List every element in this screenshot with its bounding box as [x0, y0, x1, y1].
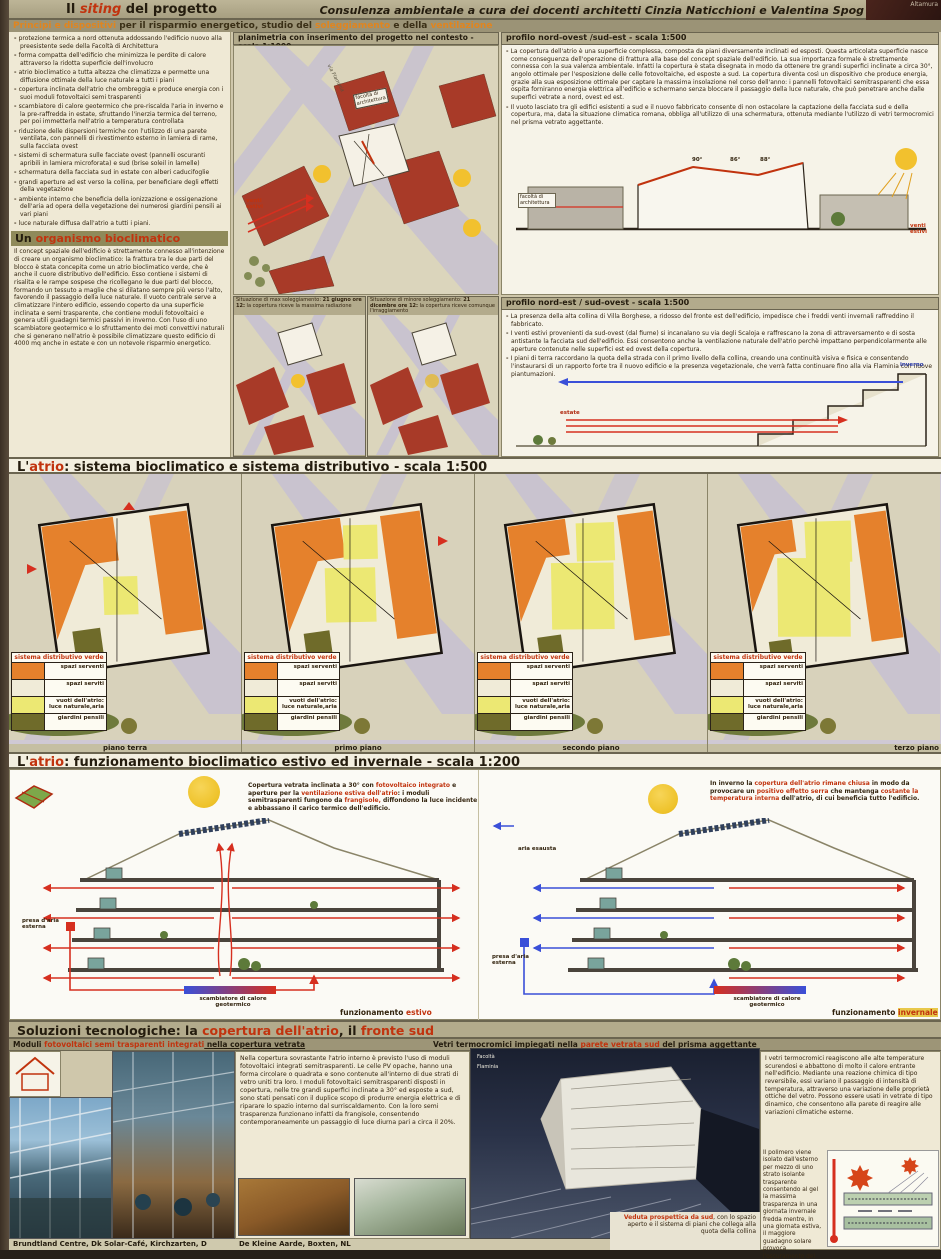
profilo-nw-header: profilo nord-ovest /sud-est - scala 1:50… — [501, 32, 939, 45]
legend-swatch — [12, 697, 45, 713]
legend-swatch — [12, 714, 45, 730]
house-icon-box — [9, 1051, 61, 1097]
veduta-accent: Veduta prospettica da sud — [624, 1214, 713, 1221]
sole-min-panel: Situazione di minore soleggiamento: 21 d… — [367, 296, 499, 457]
plan-legend: sistema distributivo verde spazi servent… — [11, 652, 107, 731]
legend-label: giardini pensili — [278, 714, 339, 730]
hdr-post: : funzionamento bioclimatico estivo ed i… — [64, 755, 520, 770]
inverno-label: inverno — [900, 362, 924, 368]
legend-row: vuoti dell'atrio: luce naturale,aria — [711, 697, 805, 714]
house-icon — [10, 1052, 60, 1096]
legend-row: spazi serventi — [245, 663, 339, 680]
legend-swatch — [245, 697, 278, 713]
bullet-item: La presenza della alta collina di Villa … — [511, 313, 934, 328]
sezione-estiva-drawing — [14, 818, 472, 1004]
bullet-item: luce naturale diffusa dall'atrio a tutti… — [20, 220, 225, 228]
principi-bullet-list: protezione termica a nord ottenuta addos… — [14, 35, 225, 228]
legend-label: spazi serventi — [511, 663, 572, 679]
principi-accent-1: Principi e dispositivi — [13, 21, 116, 31]
termocromico-diagram — [827, 1150, 939, 1247]
bullet-item: I venti estivi provenienti da sud-ovest … — [511, 330, 934, 353]
legend-label: spazi serventi — [45, 663, 106, 679]
scambiatore-label: scambiatore di calore geotermico — [188, 996, 278, 1009]
sole-max-caption: Situazione di max soleggiamento: 21 giug… — [234, 297, 365, 315]
legend-label: vuoti dell'atrio: luce naturale,aria — [511, 697, 572, 713]
legend-swatch — [245, 680, 278, 696]
photo-structure-graphic — [113, 1052, 234, 1238]
profilo-ne-header: profilo nord-est / sud-ovest - scala 1:5… — [501, 297, 939, 310]
legend-row: spazi serventi — [711, 663, 805, 680]
venti-estivi-label: venti estivi — [910, 223, 936, 236]
legend-title: sistema distributivo verde — [711, 653, 805, 663]
bullet-item: sistemi di schermatura sulle facciate ov… — [20, 152, 225, 167]
inverno-text: In inverno la copertura dell'atrio riman… — [710, 780, 938, 803]
photo-kleine-aarde-2 — [354, 1178, 466, 1236]
moduli-body: Nella copertura sovrastante l'atrio inte… — [236, 1052, 469, 1129]
principi-band: Principi e dispositivi per il risparmio … — [9, 20, 941, 32]
angle-86: 86° — [730, 157, 740, 163]
moduli-block: Nella copertura sovrastante l'atrio inte… — [235, 1051, 470, 1239]
organismo-title: Un organismo bioclimatico — [11, 231, 228, 247]
plan-panel-primo: sistema distributivo verde spazi servent… — [242, 474, 475, 752]
poster-title: Il siting del progetto — [66, 2, 217, 17]
legend-row: spazi serviti — [478, 680, 572, 697]
legend-swatch — [711, 697, 744, 713]
legend-swatch — [245, 663, 278, 679]
principi-accent-2: soleggiamento — [315, 21, 390, 31]
legend-row: giardini pensili — [478, 714, 572, 730]
legend-label: spazi serviti — [744, 680, 805, 696]
vetri-body-2: Il polimero viene isolato dall'esterno p… — [763, 1150, 825, 1259]
angle-88: 88° — [760, 157, 770, 163]
sole-min-caption: Situazione di minore soleggiamento: 21 d… — [368, 297, 498, 315]
sezioni-panel: Copertura vetrata inclinata a 30° con fo… — [9, 769, 941, 1020]
legend-label: giardini pensili — [45, 714, 106, 730]
legend-row: spazi serventi — [12, 663, 106, 680]
photo-caption-brundtland: Brundtland Centre, Dk Solar-Café, Kirchz… — [9, 1239, 235, 1250]
estate-text: Copertura vetrata inclinata a 30° con fo… — [248, 782, 478, 813]
legend-label: spazi serventi — [278, 663, 339, 679]
hdr-accent-1: copertura dell'atrio — [202, 1023, 339, 1038]
hdr-accent: atrio — [29, 755, 64, 770]
sun-icon — [188, 776, 220, 808]
title-pre: Il — [66, 2, 80, 17]
bullet-item: protezione termica a nord ottenuta addos… — [20, 35, 225, 50]
bullet-item: ambiente interno che beneficia della ion… — [20, 196, 225, 219]
bullet-item: scambiatore di calore geotermico che pre… — [20, 103, 225, 126]
venti-estivi-label: venti estivi — [246, 198, 276, 211]
legend-swatch — [478, 697, 511, 713]
presa-aria-label: presa d'aria esterna — [22, 918, 66, 931]
legend-swatch — [12, 663, 45, 679]
legend-title: sistema distributivo verde — [12, 653, 106, 663]
hdr-mid: , il — [339, 1023, 361, 1038]
header-band: Il siting del progetto Consulenza ambien… — [9, 0, 866, 20]
legend-label: spazi serviti — [278, 680, 339, 696]
plan-caption: secondo piano — [475, 744, 707, 752]
legend-swatch — [245, 714, 278, 730]
legend-label: giardini pensili — [744, 714, 805, 730]
vetri-body-1: I vetri termocromici reagiscono alle alt… — [761, 1052, 940, 1119]
plan-panel-terra: sistema distributivo verde spazi servent… — [9, 474, 242, 752]
atrio-sistema-header: L'atrio: sistema bioclimatico e sistema … — [9, 457, 941, 474]
photo-kleine-aarde-1 — [238, 1178, 350, 1236]
presa-aria-label: presa d'aria esterna — [492, 954, 538, 967]
principi-accent-3: ventilazione — [431, 21, 493, 31]
photo-truss-graphic — [10, 1098, 111, 1238]
legend-swatch — [12, 680, 45, 696]
plans-band: sistema distributivo verde spazi servent… — [9, 474, 941, 752]
plan-caption: terzo piano — [708, 744, 941, 752]
photo-caption-kleine-aarde: De Kleine Aarde, Boxten, NL — [235, 1239, 470, 1250]
planimetria-map: facoltà di architettura via Flaminia ven… — [233, 45, 499, 295]
legend-row: spazi serventi — [478, 663, 572, 680]
legend-swatch — [711, 714, 744, 730]
title-accent: siting — [80, 2, 121, 17]
legend-label: giardini pensili — [511, 714, 572, 730]
corner-text: Altamura — [910, 1, 938, 8]
bullet-item: copertura inclinata dell'atrio che ombre… — [20, 86, 225, 101]
hdr-pre: L' — [17, 755, 29, 770]
legend-swatch — [711, 663, 744, 679]
sole-min-map — [368, 315, 498, 455]
angle-90: 90° — [692, 157, 702, 163]
termocromico-diagram-graphic — [828, 1151, 938, 1246]
divider — [478, 770, 479, 1021]
legend-label: spazi serviti — [511, 680, 572, 696]
plan-legend: sistema distributivo verde spazi servent… — [244, 652, 340, 731]
render-facolta-label: Facoltà — [477, 1055, 495, 1061]
legend-row: vuoti dell'atrio: luce naturale,aria — [478, 697, 572, 714]
bullet-item: schermatura della facciata sud in estate… — [20, 169, 225, 177]
estate-label: estate — [560, 410, 580, 416]
organismo-title-accent: organismo bioclimatico — [36, 232, 181, 245]
plan-legend: sistema distributivo verde spazi servent… — [710, 652, 806, 731]
legend-label: vuoti dell'atrio: luce naturale,aria — [278, 697, 339, 713]
photo-solar-cafe — [112, 1051, 235, 1239]
legend-row: spazi serviti — [245, 680, 339, 697]
hdr-pre: L' — [17, 460, 29, 475]
profilo-nw-panel: La copertura dell'atrio è una superficie… — [501, 45, 939, 295]
legend-row: giardini pensili — [12, 714, 106, 730]
funzionamento-invernale-caption: funzionamento invernale — [832, 1008, 938, 1017]
profilo-nw-text: La copertura dell'atrio è una superficie… — [506, 48, 934, 127]
bullet-item: Il vuoto lasciato tra gli edifici esiste… — [511, 104, 934, 127]
hdr-pre: Soluzioni tecnologiche: la — [17, 1023, 202, 1038]
sun-icon — [895, 148, 917, 170]
legend-title: sistema distributivo verde — [478, 653, 572, 663]
moduli-header: Moduli fotovoltaici semi trasparenti int… — [9, 1039, 429, 1051]
sole-max-panel: Situazione di max soleggiamento: 21 giug… — [233, 296, 366, 457]
profilo-nw-drawing — [508, 145, 932, 237]
sun-icon — [425, 374, 439, 388]
legend-row: vuoti dell'atrio: luce naturale,aria — [12, 697, 106, 714]
scambiatore-label: scambiatore di calore geotermico — [722, 996, 812, 1009]
bullet-item: grandi aperture ad est verso la collina,… — [20, 179, 225, 194]
sole-max-post: la copertura riceve la massima radiazion… — [245, 303, 352, 309]
legend-swatch — [478, 714, 511, 730]
bullet-item: atrio bioclimatico a tutta altezza che c… — [20, 69, 225, 84]
legend-swatch — [478, 663, 511, 679]
hdr-accent-2: fronte sud — [361, 1023, 434, 1038]
organismo-title-pre: Un — [15, 232, 36, 245]
planimetria-map-graphic — [234, 46, 498, 294]
plan-legend: sistema distributivo verde spazi servent… — [477, 652, 573, 731]
legend-row: spazi serviti — [711, 680, 805, 697]
planimetria-header: planimetria con inserimento del progetto… — [233, 32, 499, 45]
title-post: del progetto — [121, 2, 217, 17]
soluzioni-header: Soluzioni tecnologiche: la copertura del… — [9, 1020, 941, 1039]
legend-row: vuoti dell'atrio: luce naturale,aria — [245, 697, 339, 714]
photo-brundtland — [9, 1097, 112, 1239]
atrio-funzionamento-header: L'atrio: funzionamento bioclimatico esti… — [9, 752, 941, 769]
bullet-item: La copertura dell'atrio è una superficie… — [511, 48, 934, 102]
principi-text: per il risparmio energetico, studio del — [116, 21, 315, 31]
legend-label: spazi serventi — [744, 663, 805, 679]
facolta-label: facoltà di architettura — [518, 193, 556, 208]
legend-label: vuoti dell'atrio: luce naturale,aria — [744, 697, 805, 713]
principi-text-2: e della — [390, 21, 430, 31]
poster: Altamura Il siting del progetto Consulen… — [0, 0, 941, 1259]
legend-title: sistema distributivo verde — [245, 653, 339, 663]
render-veduta: Facoltà Flaminia — [470, 1048, 760, 1239]
funzionamento-estivo-caption: funzionamento estivo — [340, 1008, 432, 1017]
hdr-accent: atrio — [29, 460, 64, 475]
bullet-item: riduzione delle dispersioni termiche con… — [20, 128, 225, 151]
axon-icon — [14, 778, 54, 812]
plan-caption: piano terra — [9, 744, 241, 752]
legend-row: giardini pensili — [711, 714, 805, 730]
plan-caption: primo piano — [242, 744, 474, 752]
veduta-caption: Veduta prospettica da sud, con lo spazio… — [610, 1212, 760, 1250]
photo-edge-left — [0, 0, 9, 1259]
credit-line: Consulenza ambientale a cura dei docenti… — [309, 4, 864, 17]
left-column: protezione termica a nord ottenuta addos… — [9, 32, 231, 457]
vetri-block: I vetri termocromici reagiscono alle alt… — [760, 1051, 941, 1250]
aria-esausta-label: aria esausta — [518, 846, 564, 852]
organismo-body: Il concept spaziale dell'edificio è stre… — [14, 248, 225, 348]
hdr-post: : sistema bioclimatico e sistema distrib… — [64, 460, 487, 475]
render-flaminia-label: Flaminia — [477, 1065, 498, 1071]
legend-swatch — [711, 680, 744, 696]
sole-max-map — [234, 315, 365, 455]
legend-row: spazi serviti — [12, 680, 106, 697]
bullet-item: forma compatta dell'edificio che minimiz… — [20, 52, 225, 67]
profilo-ne-panel: La presenza della alta collina di Villa … — [501, 310, 939, 457]
render-building-graphic — [471, 1049, 759, 1238]
legend-row: giardini pensili — [245, 714, 339, 730]
legend-label: vuoti dell'atrio: luce naturale,aria — [45, 697, 106, 713]
plan-panel-terzo: sistema distributivo verde spazi servent… — [708, 474, 941, 752]
legend-swatch — [478, 680, 511, 696]
sun-icon — [291, 374, 305, 388]
sun-icon — [648, 784, 678, 814]
plan-panel-secondo: sistema distributivo verde spazi servent… — [475, 474, 708, 752]
legend-label: spazi serviti — [45, 680, 106, 696]
